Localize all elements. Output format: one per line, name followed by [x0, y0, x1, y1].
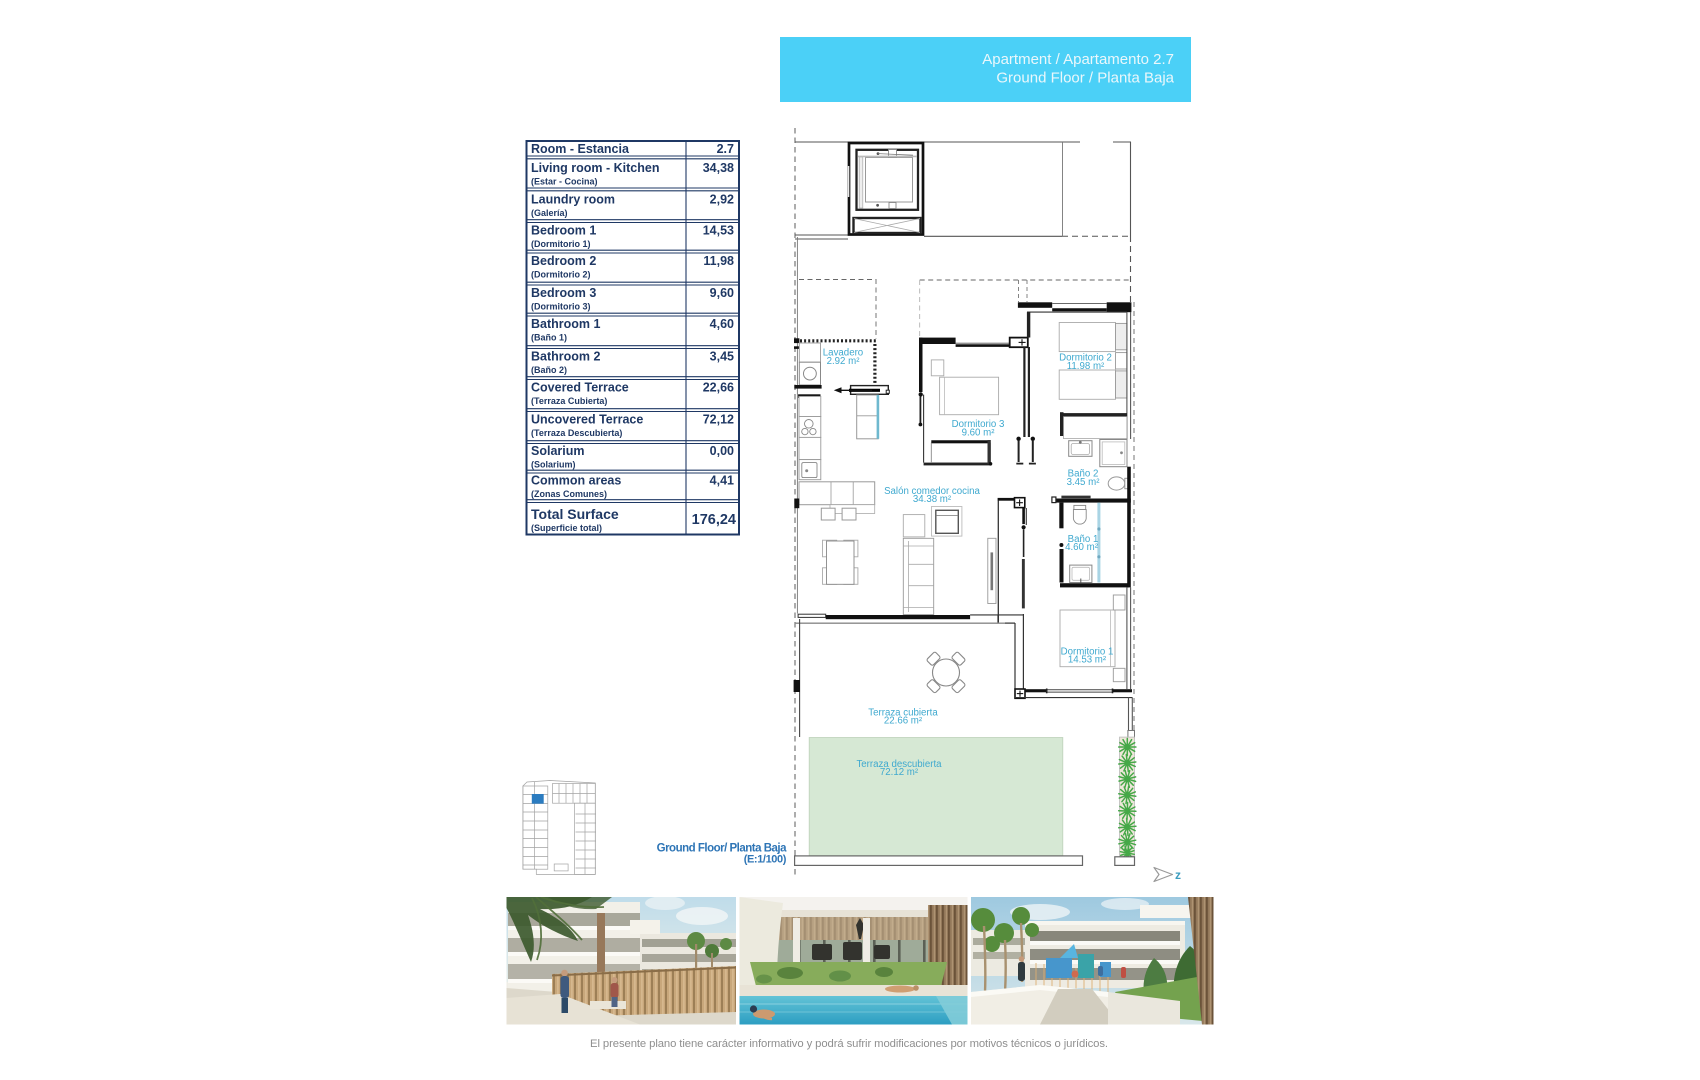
svg-text:(E:1/100): (E:1/100): [744, 854, 787, 866]
svg-text:14,53: 14,53: [703, 224, 734, 238]
svg-text:Laundry room: Laundry room: [531, 193, 615, 207]
svg-text:Ground Floor / Planta Baja: Ground Floor / Planta Baja: [996, 70, 1174, 87]
svg-text:2.92 m²: 2.92 m²: [827, 356, 861, 367]
svg-text:11,98: 11,98: [703, 254, 734, 268]
svg-text:3.45 m²: 3.45 m²: [1067, 477, 1101, 488]
svg-text:Covered Terrace: Covered Terrace: [531, 381, 629, 395]
svg-text:(Solarium): (Solarium): [531, 460, 576, 470]
svg-text:34,38: 34,38: [703, 161, 734, 175]
svg-text:72.12 m²: 72.12 m²: [880, 767, 919, 778]
svg-text:34.38 m²: 34.38 m²: [913, 494, 952, 505]
svg-text:(Baño 2): (Baño 2): [531, 365, 567, 375]
svg-text:(Terraza Cubierta): (Terraza Cubierta): [531, 396, 607, 406]
svg-text:9,60: 9,60: [710, 286, 734, 300]
svg-text:9.60 m²: 9.60 m²: [962, 428, 996, 439]
svg-text:22.66 m²: 22.66 m²: [884, 716, 923, 727]
svg-text:Bedroom 3: Bedroom 3: [531, 286, 596, 300]
svg-text:72,12: 72,12: [703, 413, 734, 427]
svg-text:0,00: 0,00: [710, 444, 734, 458]
svg-text:(Terraza Descubierta): (Terraza Descubierta): [531, 428, 622, 438]
svg-text:Bathroom 1: Bathroom 1: [531, 317, 601, 331]
svg-text:Room - Estancia: Room - Estancia: [531, 142, 630, 156]
svg-text:14.53 m²: 14.53 m²: [1068, 655, 1107, 666]
svg-text:(Galería): (Galería): [531, 208, 568, 218]
svg-text:(Dormitorio 1): (Dormitorio 1): [531, 239, 591, 249]
svg-text:Bedroom 2: Bedroom 2: [531, 254, 596, 268]
svg-text:Total Surface: Total Surface: [531, 506, 619, 522]
svg-text:(Zonas Comunes): (Zonas Comunes): [531, 489, 607, 499]
svg-text:11.98 m²: 11.98 m²: [1067, 361, 1105, 372]
svg-text:Living room - Kitchen: Living room - Kitchen: [531, 161, 659, 175]
svg-text:4,41: 4,41: [710, 474, 734, 488]
svg-text:Common areas: Common areas: [531, 474, 621, 488]
svg-text:Bedroom 1: Bedroom 1: [531, 224, 596, 238]
svg-text:z: z: [1175, 868, 1181, 882]
svg-text:4.60 m²: 4.60 m²: [1065, 542, 1099, 553]
svg-text:El presente plano tiene caráct: El presente plano tiene carácter informa…: [590, 1038, 1108, 1050]
svg-text:22,66: 22,66: [703, 381, 734, 395]
svg-text:(Baño 1): (Baño 1): [531, 333, 567, 343]
svg-text:3,45: 3,45: [710, 350, 734, 364]
svg-text:4,60: 4,60: [710, 317, 734, 331]
svg-text:(Estar - Cocina): (Estar - Cocina): [531, 177, 598, 187]
svg-text:2,92: 2,92: [710, 193, 734, 207]
svg-text:(Dormitorio 2): (Dormitorio 2): [531, 270, 591, 280]
svg-text:Bathroom 2: Bathroom 2: [531, 350, 601, 364]
svg-text:Uncovered Terrace: Uncovered Terrace: [531, 413, 643, 427]
svg-text:176,24: 176,24: [692, 512, 736, 528]
svg-text:Solarium: Solarium: [531, 444, 585, 458]
svg-text:(Superficie total): (Superficie total): [531, 523, 602, 533]
svg-text:(Dormitorio 3): (Dormitorio 3): [531, 302, 591, 312]
svg-text:2.7: 2.7: [717, 142, 734, 156]
svg-text:Apartment / Apartamento 2.7: Apartment / Apartamento 2.7: [982, 51, 1174, 68]
